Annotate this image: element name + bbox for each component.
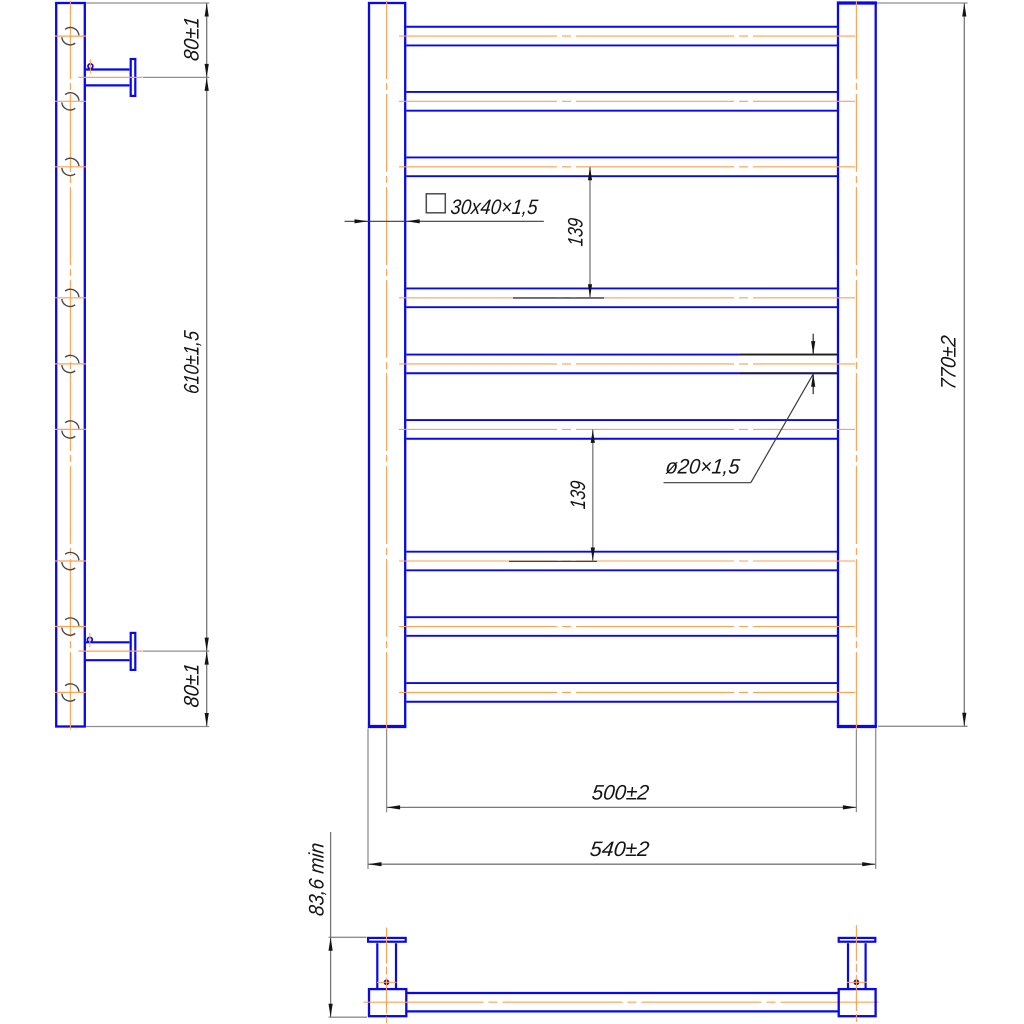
svg-text:80±1: 80±1 (181, 16, 204, 62)
svg-text:139: 139 (565, 217, 588, 248)
svg-text:770±2: 770±2 (938, 334, 961, 391)
svg-text:610±1,5: 610±1,5 (181, 329, 204, 395)
svg-text:540±2: 540±2 (589, 838, 651, 861)
svg-text:30x40×1,5: 30x40×1,5 (449, 196, 539, 219)
svg-text:500±2: 500±2 (591, 782, 651, 805)
svg-text:80±1: 80±1 (181, 662, 204, 708)
svg-text:139: 139 (567, 479, 590, 510)
svg-text:ø20×1,5: ø20×1,5 (664, 456, 741, 479)
svg-text:83,6 min: 83,6 min (306, 842, 329, 917)
